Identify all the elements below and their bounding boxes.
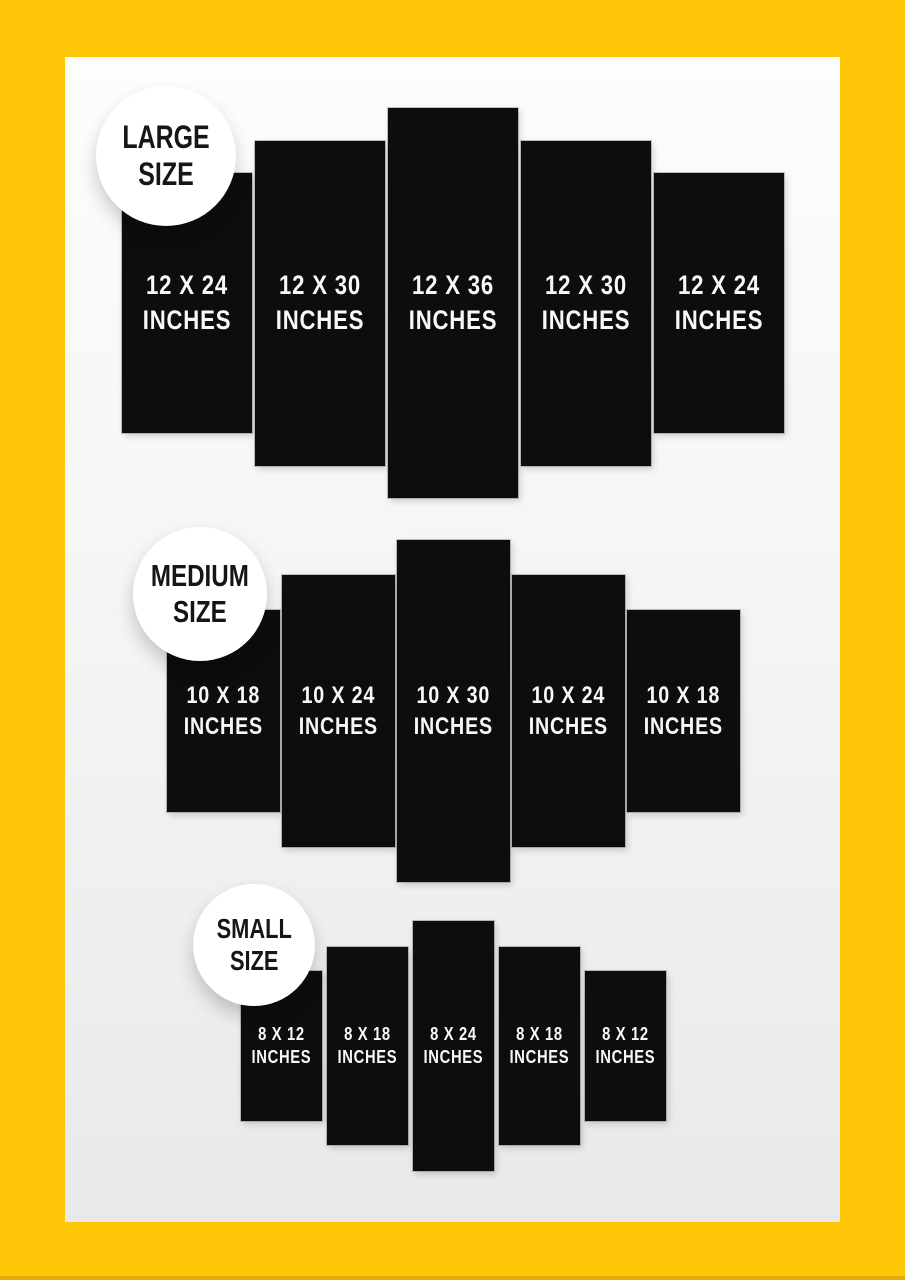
panel-unit-text: INCHES (252, 1046, 312, 1069)
canvas-panel: 8 X 18 INCHES (499, 947, 580, 1145)
panel-size-label: 8 X 18 INCHES (510, 1023, 570, 1070)
panel-size-text: 8 X 24 (424, 1023, 484, 1046)
panel-size-text: 10 X 18 (184, 680, 263, 711)
panel-size-text: 10 X 30 (414, 680, 493, 711)
large-size-badge: LARGE SIZE (96, 86, 236, 226)
canvas-panel: 8 X 18 INCHES (327, 947, 408, 1145)
badge-line-1: LARGE (122, 119, 209, 156)
panel-unit-text: INCHES (644, 711, 723, 742)
canvas-panel: 8 X 12 INCHES (585, 971, 666, 1121)
badge-label: LARGE SIZE (122, 119, 209, 193)
canvas-panel: 8 X 24 INCHES (413, 921, 494, 1171)
canvas-panel: 12 X 24 INCHES (654, 173, 784, 433)
badge-line-2: SIZE (151, 594, 249, 630)
panel-size-label: 10 X 24 INCHES (529, 680, 608, 742)
panel-unit-text: INCHES (414, 711, 493, 742)
panel-unit-text: INCHES (184, 711, 263, 742)
bottom-edge-shade (0, 1276, 905, 1280)
panel-size-label: 8 X 12 INCHES (596, 1023, 656, 1070)
size-chart-card: 12 X 24 INCHES 12 X 30 INCHES 12 X 36 IN… (65, 57, 840, 1222)
panel-unit-text: INCHES (675, 303, 764, 338)
panel-size-text: 10 X 24 (529, 680, 608, 711)
panel-unit-text: INCHES (510, 1046, 570, 1069)
panel-size-text: 12 X 30 (276, 268, 365, 303)
panel-unit-text: INCHES (424, 1046, 484, 1069)
panel-size-text: 12 X 24 (143, 268, 232, 303)
panel-size-text: 8 X 12 (252, 1023, 312, 1046)
panel-size-label: 10 X 18 INCHES (644, 680, 723, 742)
panel-size-label: 12 X 36 INCHES (409, 268, 498, 338)
medium-size-badge: MEDIUM SIZE (133, 527, 267, 661)
panel-unit-text: INCHES (409, 303, 498, 338)
panel-size-text: 10 X 24 (299, 680, 378, 711)
badge-line-2: SIZE (122, 156, 209, 193)
badge-line-2: SIZE (216, 945, 291, 977)
panel-size-text: 8 X 18 (510, 1023, 570, 1046)
canvas-panel: 10 X 18 INCHES (627, 610, 740, 812)
badge-line-1: MEDIUM (151, 558, 249, 594)
panel-size-label: 8 X 12 INCHES (252, 1023, 312, 1070)
panel-size-text: 12 X 30 (542, 268, 631, 303)
panel-unit-text: INCHES (596, 1046, 656, 1069)
canvas-panel: 10 X 24 INCHES (282, 575, 395, 847)
canvas-panel: 10 X 24 INCHES (512, 575, 625, 847)
panel-size-text: 12 X 24 (675, 268, 764, 303)
panel-size-text: 12 X 36 (409, 268, 498, 303)
panel-size-label: 12 X 24 INCHES (675, 268, 764, 338)
panel-size-label: 8 X 18 INCHES (338, 1023, 398, 1070)
panel-unit-text: INCHES (338, 1046, 398, 1069)
small-size-badge: SMALL SIZE (193, 884, 315, 1006)
panel-size-label: 10 X 30 INCHES (414, 680, 493, 742)
panel-unit-text: INCHES (299, 711, 378, 742)
panel-unit-text: INCHES (542, 303, 631, 338)
canvas-panel: 12 X 30 INCHES (255, 141, 385, 466)
badge-label: SMALL SIZE (216, 913, 291, 977)
panel-size-label: 12 X 24 INCHES (143, 268, 232, 338)
panel-size-text: 8 X 18 (338, 1023, 398, 1046)
panel-unit-text: INCHES (143, 303, 232, 338)
canvas-panel: 10 X 30 INCHES (397, 540, 510, 882)
panel-unit-text: INCHES (529, 711, 608, 742)
badge-label: MEDIUM SIZE (151, 558, 249, 629)
panel-size-label: 12 X 30 INCHES (276, 268, 365, 338)
panel-size-label: 10 X 24 INCHES (299, 680, 378, 742)
panel-size-label: 8 X 24 INCHES (424, 1023, 484, 1070)
size-guide-poster: { "colors": { "frame_yellow": "#FFC708",… (0, 0, 905, 1280)
panel-size-text: 8 X 12 (596, 1023, 656, 1046)
panel-size-label: 12 X 30 INCHES (542, 268, 631, 338)
canvas-panel: 12 X 30 INCHES (521, 141, 651, 466)
panel-size-label: 10 X 18 INCHES (184, 680, 263, 742)
canvas-panel: 12 X 36 INCHES (388, 108, 518, 498)
panel-size-text: 10 X 18 (644, 680, 723, 711)
panel-unit-text: INCHES (276, 303, 365, 338)
badge-line-1: SMALL (216, 913, 291, 945)
